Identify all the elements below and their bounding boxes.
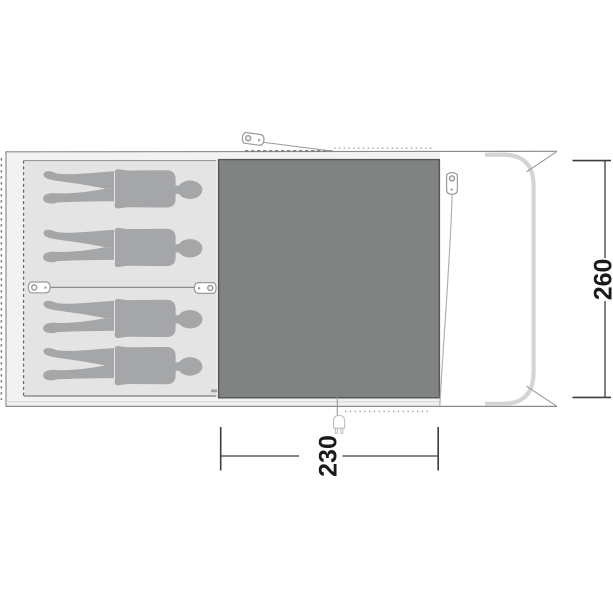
svg-text:260: 260 [590, 259, 613, 301]
svg-text:230: 230 [315, 435, 343, 477]
